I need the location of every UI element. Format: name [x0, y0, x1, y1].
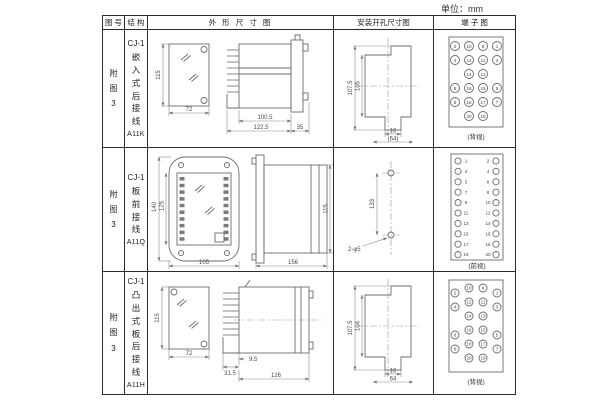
- header-mounting-label: 安装开孔尺寸图: [357, 17, 410, 28]
- screw-hole: [178, 250, 183, 255]
- terminal-number: 12: [466, 57, 472, 62]
- terminal-pin: [493, 230, 499, 236]
- row2-structure: CJ-1 板前接线 A11Q: [125, 148, 148, 272]
- terminal-pin: [493, 178, 499, 184]
- view-label: (背视): [467, 377, 484, 386]
- row2-fig-no: 附图3: [103, 148, 125, 272]
- hanger-hook: [295, 35, 300, 40]
- terminal-pin: [455, 199, 461, 205]
- terminal-number: 17: [463, 241, 469, 246]
- terminal-pin: [493, 168, 499, 174]
- dim-outer-height: 107.5: [348, 320, 354, 336]
- terminal-block-outline: [449, 37, 503, 127]
- terminal-number: 3: [496, 305, 499, 310]
- document-page: 单位：mm 图 号 结 构 外 形 尺 寸 图 安装开孔尺寸图 端 子 图 附图…: [0, 0, 600, 400]
- dim-case-depth: 126: [270, 373, 281, 379]
- dim-plate-height: 140: [152, 201, 158, 212]
- mounting-hole-drawing-a11h: 107.5 104 16 64: [335, 273, 433, 393]
- terminal-number: 18: [466, 99, 472, 104]
- structure-desc: 板前接线: [132, 185, 141, 236]
- dim-case-depth: 156: [287, 260, 298, 266]
- terminal-number: 15: [480, 85, 486, 90]
- terminal-pin: [455, 189, 461, 195]
- terminal-number: 3: [465, 169, 468, 174]
- terminal-number: 7: [496, 347, 499, 352]
- dim-step-depth: 9.5: [249, 357, 258, 363]
- terminal-pin: [493, 251, 499, 257]
- hole-callout: 2-φ5: [348, 247, 361, 253]
- terminal-number: 8: [454, 99, 457, 104]
- outline-drawing-a11q: 140 125 105 156: [149, 149, 333, 271]
- terminal-number: 14: [485, 221, 491, 226]
- terminal-pin: [493, 241, 499, 247]
- terminal-number: 6: [454, 333, 457, 338]
- row1-terminal-cell: 2 10 9 1 4 12 11 3 14 13 6 16 15 5 8 18: [434, 30, 515, 148]
- fig-no-text: 附图3: [110, 310, 118, 356]
- dim-case-depth: 100.5: [257, 115, 273, 121]
- row1-outline-cell: 115 72: [148, 30, 334, 148]
- hatch-mark: [195, 185, 205, 193]
- row3-outline-cell: 115 72 9.5: [148, 272, 334, 394]
- terminal-number: 20: [466, 113, 472, 118]
- header-structure-label: 结 构: [127, 17, 144, 28]
- terminal-pin: [455, 209, 461, 215]
- unit-label: 单位：mm: [441, 2, 483, 15]
- dim-cutout-height: 104: [355, 320, 361, 331]
- terminal-number: 16: [466, 85, 472, 90]
- terminal-number: 13: [480, 71, 486, 76]
- dimension-table: 图 号 结 构 外 形 尺 寸 图 安装开孔尺寸图 端 子 图 附图3 CJ-1…: [102, 15, 516, 395]
- relay-side-view: [223, 280, 321, 353]
- terminal-pin: [493, 189, 499, 195]
- header-outline: 外 形 尺 寸 图: [148, 16, 334, 30]
- structure-code: A11Q: [127, 239, 146, 246]
- dim-plate-width: 105: [198, 260, 209, 266]
- terminal-pin: [455, 168, 461, 174]
- dim-slot-width: 16: [389, 128, 396, 134]
- terminal-number: 5: [496, 333, 499, 338]
- screw-hole: [178, 162, 183, 167]
- row1-structure: CJ-1 嵌入式后接线 A11K: [125, 30, 148, 148]
- terminal-pin: [493, 209, 499, 215]
- terminal-pins: 2 10 9 1 4 12 11 3 14 13 6 16 15 5 8 18: [451, 284, 501, 362]
- row3-terminal-cell: 2 10 9 1 4 12 11 3 14 13 6 16 15 5 8 18: [434, 272, 515, 394]
- dim-outer-height: 107.5: [348, 79, 354, 95]
- terminal-number: 14: [466, 71, 472, 76]
- terminal-number: 15: [480, 328, 486, 333]
- terminal-number: 19: [480, 356, 486, 361]
- terminal-number: 1: [496, 291, 499, 296]
- terminal-number: 10: [466, 286, 472, 291]
- row3-mounting-cell: 107.5 104 16 64: [334, 272, 434, 394]
- terminal-number: 4: [487, 169, 490, 174]
- terminal-number: 4: [454, 305, 457, 310]
- relay-side-view: [227, 35, 308, 112]
- terminal-pin: [455, 220, 461, 226]
- header-terminal-label: 端 子 图: [461, 17, 488, 28]
- terminal-number: 17: [480, 99, 486, 104]
- hatch-mark: [205, 207, 215, 215]
- dim-front-width: 72: [185, 107, 192, 113]
- dim-slot-width: 16: [389, 369, 396, 375]
- row3-structure: CJ-1 凸出式板后接线 A11H: [125, 272, 148, 394]
- terminal-number: 2: [454, 43, 457, 48]
- terminal-number: 10: [466, 43, 472, 48]
- terminal-number: 7: [465, 189, 468, 194]
- terminal-diagram-a11h: 2 10 9 1 4 12 11 3 14 13 6 16 15 5 8 18: [435, 273, 514, 393]
- structure-model: CJ-1: [128, 173, 145, 182]
- structure-code: A11K: [127, 131, 145, 138]
- row2-terminal-cell: 12 34 56 78 910 1112 1314 1516 1718 1920…: [434, 148, 515, 272]
- dim-total-depth: 122.5: [253, 125, 269, 131]
- fig-no-text: 附图3: [110, 187, 118, 233]
- structure-model: CJ-1: [128, 277, 145, 286]
- dim-front-width: 72: [185, 351, 192, 357]
- terminal-number: 5: [465, 179, 468, 184]
- terminal-number: 12: [485, 210, 491, 215]
- screw-hole: [224, 250, 229, 255]
- terminal-number: 1: [465, 158, 468, 163]
- terminal-block-outline: [451, 154, 503, 260]
- terminal-pin: [455, 178, 461, 184]
- terminal-number: 8: [487, 189, 490, 194]
- row1-mounting-cell: 107.5 105 16 (64): [334, 30, 434, 148]
- dim-pin-depth: 31.5: [224, 371, 236, 377]
- view-label: (前视): [468, 261, 485, 270]
- terminal-number: 2: [454, 291, 457, 296]
- row3-fig-no: 附图3: [103, 272, 125, 394]
- terminal-pin: [493, 157, 499, 163]
- structure-desc: 嵌入式后接线: [132, 51, 141, 128]
- relay-front-view: [169, 287, 209, 349]
- terminal-diagram-a11k: 2 10 9 1 4 12 11 3 14 13 6 16 15 5 8 18: [435, 31, 514, 147]
- terminal-number: 12: [466, 300, 472, 305]
- terminal-pin: [455, 230, 461, 236]
- screw-hole: [201, 46, 207, 52]
- row2-outline-cell: 140 125 105 156: [148, 148, 334, 272]
- hatch-mark: [181, 54, 191, 62]
- view-label: (背视): [467, 132, 484, 141]
- terminal-number: 4: [454, 57, 457, 62]
- terminal-number: 6: [454, 85, 457, 90]
- structure-desc: 凸出式板后接线: [132, 289, 141, 378]
- terminal-pins: 2 10 9 1 4 12 11 3 14 13 6 16 15 5 8 18: [451, 41, 502, 120]
- header-mounting: 安装开孔尺寸图: [334, 16, 434, 30]
- terminal-number: 17: [480, 342, 486, 347]
- header-terminal: 端 子 图: [434, 16, 515, 30]
- outline-drawing-a11k: 115 72: [149, 32, 333, 146]
- fig-no-text: 附图3: [110, 66, 118, 112]
- header-outline-label: 外 形 尺 寸 图: [209, 17, 273, 28]
- terminal-number: 11: [481, 57, 486, 62]
- header-fig-no-label: 图 号: [105, 17, 122, 28]
- terminal-pins: 12 34 56 78 910 1112 1314 1516 1718 1920: [455, 157, 499, 257]
- terminal-number: 10: [485, 200, 491, 205]
- terminal-number: 20: [485, 252, 491, 257]
- terminal-number: 16: [466, 328, 472, 333]
- header-fig-no: 图 号: [103, 16, 125, 30]
- screw-hole: [201, 341, 207, 347]
- terminal-number: 3: [496, 57, 499, 62]
- terminal-number: 13: [480, 314, 486, 319]
- relay-front-view: [169, 44, 209, 106]
- screw-hole: [201, 97, 207, 103]
- terminal-number: 7: [496, 99, 499, 104]
- terminal-pin: [493, 199, 499, 205]
- structure-code: A11H: [127, 382, 145, 389]
- dim-hole-spacing: 133: [370, 198, 376, 209]
- row2-mounting-cell: 133 2-φ5: [334, 148, 434, 272]
- screw-hole: [224, 162, 229, 167]
- mounting-hole-drawing-a11q: 133 2-φ5: [335, 149, 433, 271]
- terminal-number: 6: [487, 179, 490, 184]
- hanger-hook: [245, 280, 250, 287]
- dim-front-height: 115: [156, 69, 162, 79]
- terminal-pin: [455, 241, 461, 247]
- terminal-diagram-a11q: 12 34 56 78 910 1112 1314 1516 1718 1920…: [435, 149, 514, 271]
- terminal-number: 11: [464, 210, 469, 215]
- hatch-mark: [189, 74, 199, 82]
- dim-hole-span: (64): [387, 136, 398, 142]
- terminal-number: 20: [466, 356, 472, 361]
- terminal-number: 11: [481, 300, 486, 305]
- dim-case-height: 115: [323, 203, 329, 213]
- dim-terminal-height: 125: [159, 200, 165, 211]
- mounting-hole-drawing-a11k: 107.5 105 16 (64): [335, 31, 433, 147]
- terminal-number: 13: [463, 221, 469, 226]
- terminal-number: 18: [485, 241, 491, 246]
- outline-drawing-a11h: 115 72 9.5: [149, 273, 333, 393]
- terminal-number: 9: [482, 43, 485, 48]
- terminal-number: 15: [463, 231, 469, 236]
- relay-front-view: [169, 157, 239, 261]
- terminal-number: 19: [480, 113, 486, 118]
- dim-front-height: 115: [155, 313, 161, 323]
- dim-cutout-height: 105: [355, 80, 361, 91]
- hatch-mark: [177, 299, 187, 307]
- terminal-number: 16: [485, 231, 491, 236]
- row1-fig-no: 附图3: [103, 30, 125, 148]
- relay-side-view: [252, 155, 327, 263]
- terminal-number: 9: [482, 286, 485, 291]
- leader-line: [363, 238, 387, 246]
- terminal-pin: [493, 220, 499, 226]
- header-structure: 结 构: [125, 16, 148, 30]
- terminal-number: 8: [454, 347, 457, 352]
- latch-square: [215, 233, 224, 242]
- screw-hole: [171, 289, 177, 295]
- hatch-mark: [189, 321, 199, 329]
- dim-flange-depth: 35: [296, 125, 303, 131]
- terminal-number: 18: [466, 342, 472, 347]
- terminal-pin: [455, 251, 461, 257]
- structure-model: CJ-1: [128, 39, 145, 48]
- terminal-number: 5: [496, 85, 499, 90]
- terminal-pin: [455, 157, 461, 163]
- terminal-number: 9: [465, 200, 468, 205]
- terminal-number: 14: [466, 314, 472, 319]
- terminal-number: 1: [496, 43, 499, 48]
- terminal-number: 19: [463, 252, 469, 257]
- terminal-number: 2: [487, 158, 490, 163]
- dim-hole-span: 64: [389, 377, 396, 383]
